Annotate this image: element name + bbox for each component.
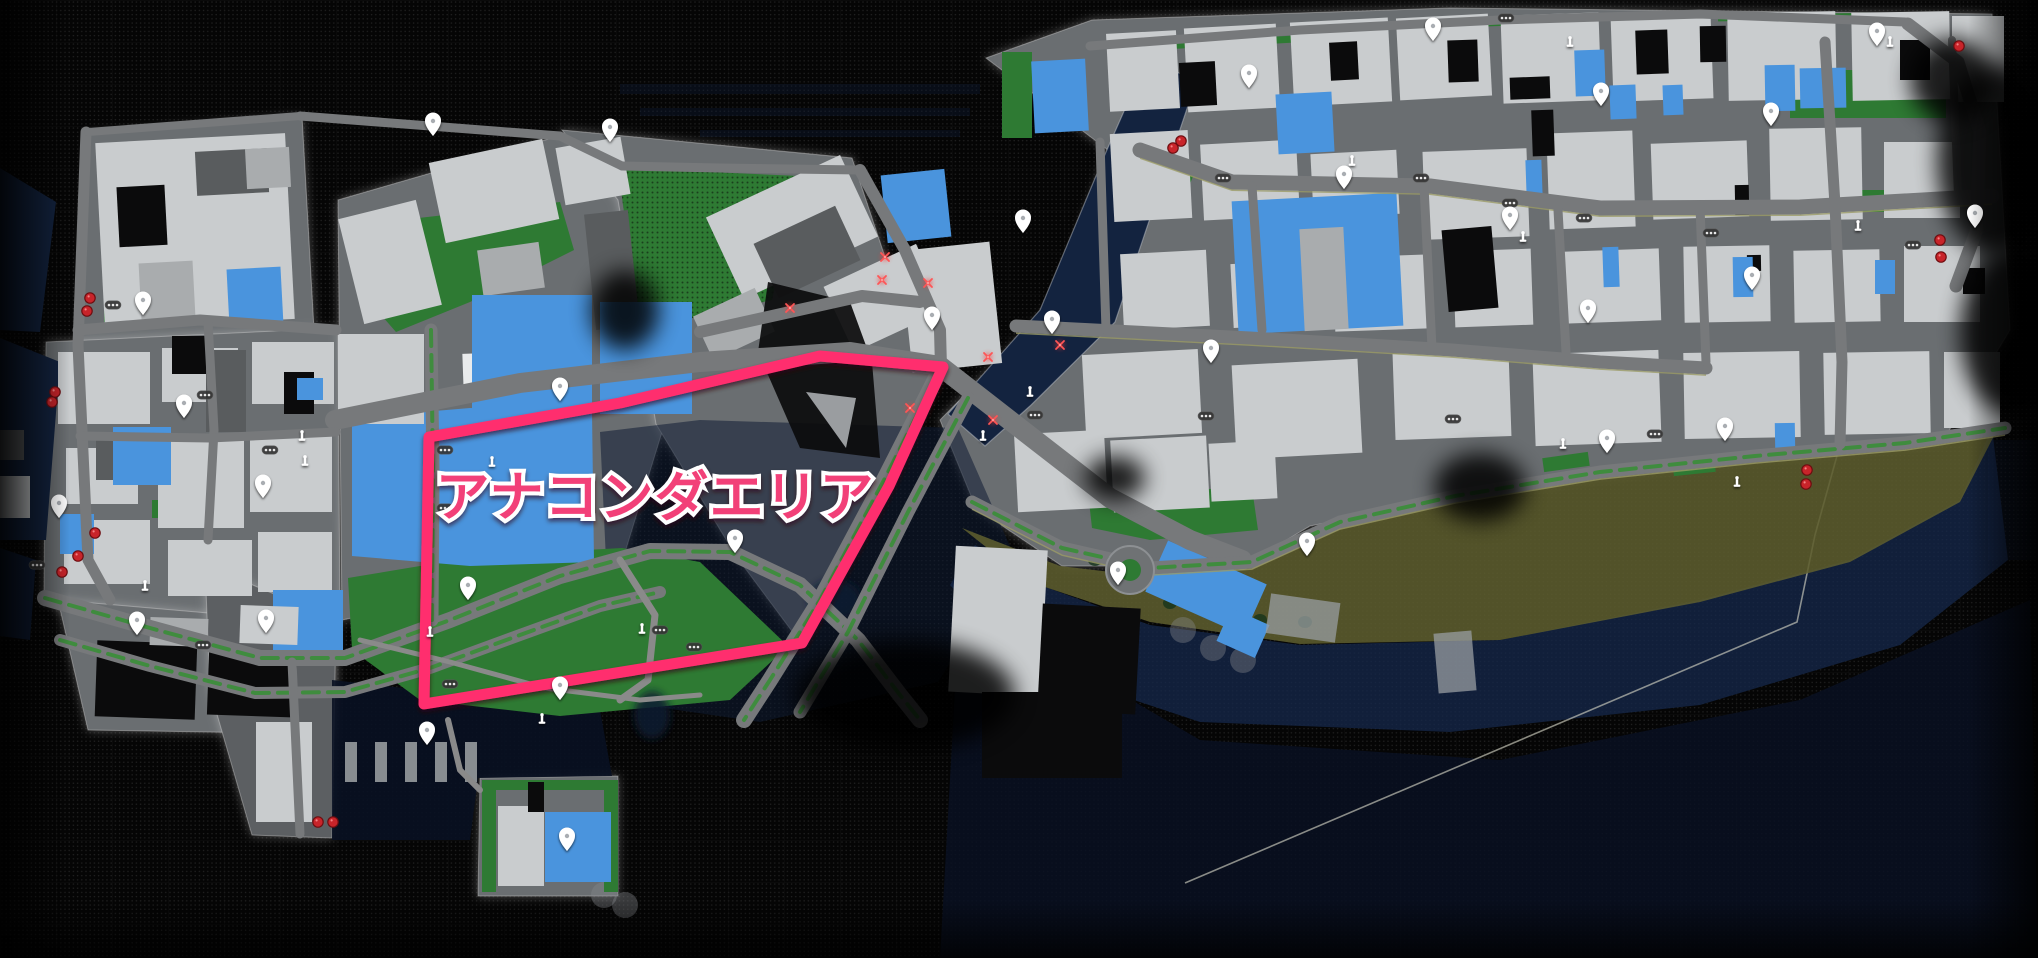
pool-building <box>1609 85 1636 120</box>
pin-hole <box>733 536 737 540</box>
pin-hole <box>1599 89 1603 93</box>
crosswalk-dot <box>202 644 205 647</box>
crosswalk-dot <box>1205 415 1208 418</box>
pin-hole <box>1750 273 1754 277</box>
valve-head <box>1568 36 1571 39</box>
crosswalk-dot <box>663 629 666 632</box>
pin-hole <box>264 616 268 620</box>
building <box>1082 349 1202 439</box>
valve-stem <box>1889 39 1891 45</box>
crosswalk-marker <box>1703 229 1719 237</box>
crosswalk-dot <box>1030 414 1033 417</box>
red-dot <box>1802 465 1812 475</box>
building <box>168 540 252 596</box>
fog-blob <box>591 270 659 350</box>
building <box>256 722 312 822</box>
water-streak <box>620 84 980 94</box>
red-dot-shine <box>1938 237 1940 239</box>
valve-stem <box>641 626 643 632</box>
valve-base <box>142 589 149 591</box>
red-dot <box>85 293 95 303</box>
building <box>116 185 167 247</box>
red-sparkle-icon <box>924 279 933 288</box>
building <box>1329 41 1359 80</box>
red-signal-marker[interactable] <box>1954 41 1964 51</box>
shore-foam <box>1170 617 1196 643</box>
fog-blob <box>1434 453 1526 521</box>
crosswalk-dot <box>1654 433 1657 436</box>
pin-hole <box>182 401 186 405</box>
crosswalk-dot <box>1209 415 1212 418</box>
city-map[interactable]: アナコンダエリア <box>0 0 2038 958</box>
game-map-viewport: アナコンダエリア <box>0 0 2038 958</box>
red-dot <box>1935 235 1945 245</box>
pin-hole <box>1605 436 1609 440</box>
valve-stem <box>1857 223 1859 229</box>
valve-stem <box>541 716 543 722</box>
valve-head <box>1856 220 1859 223</box>
valve-head <box>428 626 431 629</box>
crosswalk-dot <box>204 394 207 397</box>
valve-base <box>1520 240 1527 242</box>
crosswalk-dot <box>1916 244 1919 247</box>
valve-base <box>1349 164 1356 166</box>
red-dot-shine <box>1957 43 1959 45</box>
crosswalk-dot <box>1448 418 1451 421</box>
red-signal-marker[interactable] <box>1802 465 1812 475</box>
building <box>1442 226 1499 312</box>
red-dot <box>90 528 100 538</box>
red-signal-marker[interactable] <box>1936 252 1946 262</box>
red-signal-marker[interactable] <box>313 817 323 827</box>
red-signal-marker[interactable] <box>1935 235 1945 245</box>
pin-hole <box>431 119 435 123</box>
crosswalk-dot <box>273 449 276 452</box>
crosswalk-dot <box>445 683 448 686</box>
valve-base <box>1855 229 1862 231</box>
pin-hole <box>135 618 139 622</box>
valve-head <box>1888 36 1891 39</box>
pin-hole <box>558 683 562 687</box>
valve-head <box>143 580 146 583</box>
red-signal-marker[interactable] <box>328 817 338 827</box>
valve-stem <box>491 459 493 465</box>
red-dot-shine <box>85 308 87 310</box>
valve-stem <box>1522 234 1524 240</box>
crosswalk-marker <box>1502 199 1518 207</box>
sparkle-core <box>992 419 994 421</box>
pool-building <box>545 812 611 882</box>
red-dot <box>1954 41 1964 51</box>
red-dot <box>313 817 323 827</box>
valve-head <box>303 455 306 458</box>
crosswalk-dot <box>1222 177 1225 180</box>
crosswalk-dot <box>1034 414 1037 417</box>
crosswalk-dot <box>265 449 268 452</box>
crosswalk-dot <box>1579 217 1582 220</box>
red-dot <box>328 817 338 827</box>
crosswalk-marker <box>105 301 121 309</box>
crosswalk-dot <box>1038 414 1041 417</box>
valve-head <box>490 456 493 459</box>
building <box>1179 61 1217 107</box>
crosswalk-dot <box>1710 232 1713 235</box>
pin-hole <box>1209 346 1213 350</box>
crosswalk-marker <box>442 680 458 688</box>
valve-stem <box>301 433 303 439</box>
valve-base <box>302 464 309 466</box>
crosswalk-marker <box>1198 412 1214 420</box>
red-dot-shine <box>1805 467 1807 469</box>
valve-base <box>1567 45 1574 47</box>
crosswalk-marker <box>437 446 453 454</box>
crosswalk-marker <box>262 446 278 454</box>
valve-base <box>489 465 496 467</box>
crosswalk-dot <box>1658 433 1661 436</box>
crosswalk-dot <box>440 449 443 452</box>
crosswalk-dot <box>697 646 700 649</box>
building <box>1635 29 1669 74</box>
red-dot-shine <box>88 295 90 297</box>
red-sparkle-icon <box>906 404 915 413</box>
red-sparkle-icon <box>984 353 993 362</box>
crosswalk-dot <box>1505 17 1508 20</box>
building <box>1209 440 1278 501</box>
crosswalk-dot <box>1226 177 1229 180</box>
pin-hole <box>608 125 612 129</box>
crosswalk-dot <box>1650 433 1653 436</box>
pin-hole <box>1021 216 1025 220</box>
building <box>1299 227 1348 331</box>
area-label: アナコンダエリア <box>436 466 875 529</box>
pool-building <box>297 378 323 400</box>
crosswalk-dot <box>1513 202 1516 205</box>
crosswalk-dot <box>453 683 456 686</box>
crosswalk-dot <box>1201 415 1204 418</box>
pin-hole <box>930 313 934 317</box>
pin-hole <box>466 583 470 587</box>
green-strip <box>1002 52 1032 138</box>
sparkle-core <box>884 256 886 258</box>
crosswalk-dot <box>1587 217 1590 220</box>
red-dot <box>82 306 92 316</box>
crosswalk-dot <box>1456 418 1459 421</box>
red-sparkle-icon <box>786 304 795 313</box>
dock-column <box>405 742 417 782</box>
vignette-right <box>1968 0 2038 958</box>
pin-hole <box>1586 306 1590 310</box>
crosswalk-dot <box>1501 17 1504 20</box>
sparkle-core <box>927 282 929 284</box>
sparkle-core <box>909 407 911 409</box>
fog-blob <box>1085 456 1145 500</box>
pin-hole <box>1050 317 1054 321</box>
crosswalk-dot <box>1583 217 1586 220</box>
valve-head <box>1735 476 1738 479</box>
red-signal-marker[interactable] <box>82 306 92 316</box>
road <box>622 166 860 170</box>
red-sparkle-icon <box>878 276 887 285</box>
valve-head <box>1350 155 1353 158</box>
building <box>1393 350 1512 440</box>
pin-hole <box>1305 539 1309 543</box>
valve-base <box>639 632 646 634</box>
building <box>139 261 196 320</box>
pin-hole <box>1769 109 1773 113</box>
red-signal-marker[interactable] <box>1801 479 1811 489</box>
crosswalk-dot <box>1714 232 1717 235</box>
red-signal-marker[interactable] <box>85 293 95 303</box>
pool-building <box>1775 423 1795 449</box>
valve-stem <box>1562 441 1564 447</box>
crosswalk-dot <box>269 449 272 452</box>
building <box>498 806 544 886</box>
valve-stem <box>1569 39 1571 45</box>
crosswalk-dot <box>1509 17 1512 20</box>
crosswalk-dot <box>1424 177 1427 180</box>
dock-column <box>435 742 447 782</box>
crosswalk-marker <box>1027 411 1043 419</box>
red-dot <box>1176 136 1186 146</box>
red-dot-shine <box>76 553 78 555</box>
crosswalk-marker <box>197 391 213 399</box>
water-streak <box>640 108 970 116</box>
red-dot-shine <box>1179 138 1181 140</box>
red-sparkle-icon <box>1056 341 1065 350</box>
fog-blob <box>795 640 1015 750</box>
building <box>1531 110 1555 157</box>
valve-head <box>540 713 543 716</box>
valve-stem <box>1351 158 1353 164</box>
crosswalk-marker <box>1413 174 1429 182</box>
sparkle-core <box>881 279 883 281</box>
building <box>1510 76 1551 99</box>
red-dot <box>73 551 83 561</box>
valve-stem <box>1029 389 1031 395</box>
crosswalk-dot <box>1452 418 1455 421</box>
red-sparkle-icon <box>881 253 890 262</box>
crosswalk-dot <box>689 646 692 649</box>
pin-hole <box>1723 424 1727 428</box>
pool-building <box>1031 59 1089 134</box>
crosswalk-dot <box>108 304 111 307</box>
crosswalk-dot <box>1912 244 1915 247</box>
building <box>1700 26 1727 62</box>
valve-base <box>1887 45 1894 47</box>
sparkle-core <box>1059 344 1061 346</box>
valve-base <box>980 439 987 441</box>
pin-hole <box>1247 71 1251 75</box>
red-signal-marker[interactable] <box>73 551 83 561</box>
crosswalk-dot <box>1908 244 1911 247</box>
valve-head <box>981 430 984 433</box>
crosswalk-dot <box>112 304 115 307</box>
crosswalk-dot <box>659 629 662 632</box>
crosswalk-marker <box>1215 174 1231 182</box>
red-dot-shine <box>1804 481 1806 483</box>
dock-column <box>375 742 387 782</box>
water-streak <box>700 130 960 137</box>
building <box>250 436 332 512</box>
vignette-bottom <box>0 900 2038 958</box>
crosswalk-dot <box>449 683 452 686</box>
pool-building <box>1525 160 1542 197</box>
crosswalk-dot <box>1416 177 1419 180</box>
road <box>1100 142 1106 330</box>
building <box>258 532 332 592</box>
valve-base <box>299 439 306 441</box>
valve-head <box>1521 231 1524 234</box>
pool-building <box>1875 260 1895 294</box>
red-dot-shine <box>331 819 333 821</box>
pin-hole <box>1431 24 1435 28</box>
crosswalk-dot <box>1706 232 1709 235</box>
valve-stem <box>304 458 306 464</box>
building <box>1120 250 1210 330</box>
red-dot-shine <box>316 819 318 821</box>
crosswalk-marker <box>1905 241 1921 249</box>
pool-building <box>1602 247 1619 288</box>
valve-base <box>1734 485 1741 487</box>
pin-hole <box>1342 172 1346 176</box>
valve-stem <box>982 433 984 439</box>
green-strip <box>482 780 618 790</box>
crosswalk-dot <box>198 644 201 647</box>
pool-building <box>1275 92 1334 155</box>
vignette-left <box>0 0 70 958</box>
sparkle-core <box>789 307 791 309</box>
crosswalk-marker <box>1498 14 1514 22</box>
red-dot-shine <box>1171 145 1173 147</box>
building <box>58 352 150 424</box>
crosswalk-dot <box>1509 202 1512 205</box>
pin-hole <box>141 298 145 302</box>
red-dot-shine <box>93 530 95 532</box>
crosswalk-dot <box>206 644 209 647</box>
crosswalk-dot <box>208 394 211 397</box>
pin-hole <box>558 384 562 388</box>
crosswalk-marker <box>686 643 702 651</box>
valve-head <box>300 430 303 433</box>
pin-hole <box>565 834 569 838</box>
sparkle-core <box>987 356 989 358</box>
crosswalk-dot <box>655 629 658 632</box>
red-sparkle-icon <box>989 416 998 425</box>
crosswalk-marker <box>652 626 668 634</box>
crosswalk-marker <box>195 641 211 649</box>
valve-base <box>1027 395 1034 397</box>
crosswalk-dot <box>444 449 447 452</box>
red-dot-shine <box>1939 254 1941 256</box>
red-signal-marker[interactable] <box>90 528 100 538</box>
valve-base <box>1560 447 1567 449</box>
building <box>528 782 544 812</box>
crosswalk-dot <box>448 449 451 452</box>
red-dot <box>1936 252 1946 262</box>
pin-hole <box>1116 568 1120 572</box>
pin-hole <box>425 728 429 732</box>
crosswalk-dot <box>1420 177 1423 180</box>
valve-stem <box>1736 479 1738 485</box>
building <box>1447 39 1478 82</box>
crosswalk-marker <box>1647 430 1663 438</box>
crosswalk-dot <box>116 304 119 307</box>
pin-hole <box>1508 213 1512 217</box>
pin-hole <box>1875 29 1879 33</box>
crosswalk-marker <box>1445 415 1461 423</box>
green-strip <box>482 780 496 892</box>
crosswalk-dot <box>693 646 696 649</box>
pool-building <box>1662 85 1683 116</box>
red-dot <box>1801 479 1811 489</box>
valve-head <box>1561 438 1564 441</box>
valve-base <box>427 635 434 637</box>
building <box>245 147 291 189</box>
red-signal-marker[interactable] <box>1176 136 1186 146</box>
valve-stem <box>429 629 431 635</box>
building <box>477 242 545 296</box>
crosswalk-dot <box>1505 202 1508 205</box>
valve-stem <box>144 583 146 589</box>
dock-column <box>345 742 357 782</box>
building <box>172 336 206 374</box>
crosswalk-dot <box>200 394 203 397</box>
crosswalk-marker <box>1576 214 1592 222</box>
valve-head <box>1028 386 1031 389</box>
valve-base <box>539 722 546 724</box>
pin-hole <box>261 481 265 485</box>
pier-structure <box>1433 630 1476 693</box>
crosswalk-dot <box>1218 177 1221 180</box>
valve-head <box>640 623 643 626</box>
